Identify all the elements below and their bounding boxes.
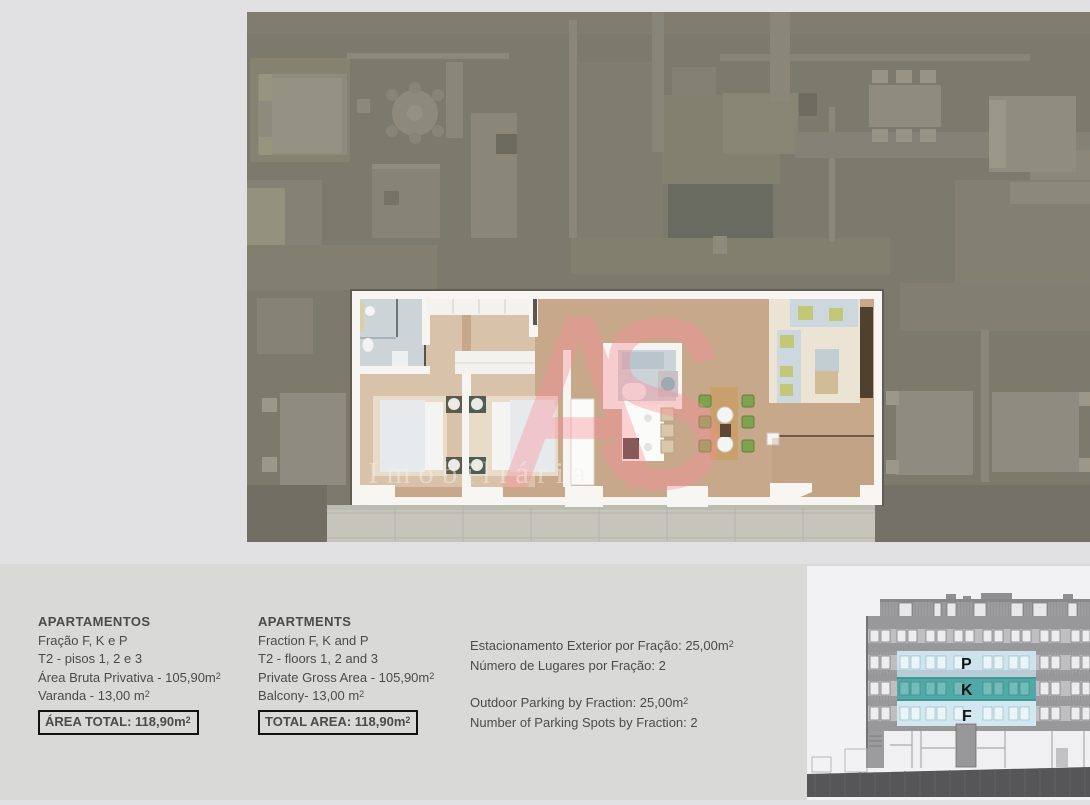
svg-text:P: P [961,656,972,673]
svg-text:Imobiliária: Imobiliária [368,455,594,490]
svg-text:S: S [595,272,725,538]
svg-text:K: K [961,682,973,699]
svg-text:F: F [962,708,972,725]
